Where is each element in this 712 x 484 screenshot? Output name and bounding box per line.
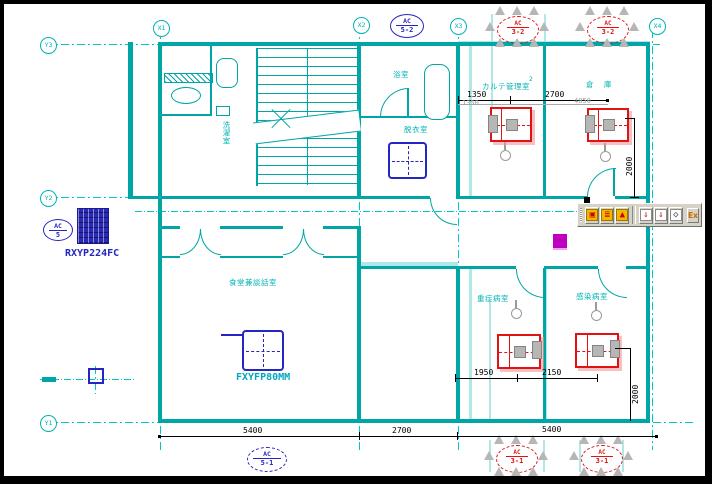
wall-segment [646, 42, 650, 423]
raise-tool-button[interactable]: ▲ [615, 207, 629, 224]
wall-segment [158, 42, 162, 423]
ac-tag-system: AC [597, 20, 619, 28]
dimension-line [455, 378, 598, 379]
wall-segment [360, 266, 516, 269]
dimension-text: 2700 [545, 90, 564, 99]
room-label-changing: 脱衣室 [404, 124, 428, 135]
indoor-unit-label: FXYFP80MM [236, 372, 290, 383]
ac-tag-system: AC [253, 450, 281, 459]
dimension-text: 2150 [542, 368, 561, 377]
wall-segment [158, 419, 650, 423]
ac-tag-red-selected[interactable]: AC 3-2 [492, 12, 542, 46]
dimension-tick [615, 348, 631, 349]
wall-segment [128, 196, 430, 199]
cassette-unit [242, 330, 284, 371]
wall-segment [456, 42, 460, 198]
door-arc [380, 88, 409, 117]
grip-triangle[interactable] [538, 451, 548, 460]
grip-triangle[interactable] [619, 6, 629, 15]
dimension-text: 5400 [542, 425, 561, 434]
door-arc [283, 229, 304, 255]
ac-tag-red-selected[interactable]: AC 3-1 [576, 441, 626, 475]
room-label-laundry: 洗濯室 [221, 121, 232, 161]
grip-triangle[interactable] [484, 451, 494, 460]
ac-tag-5-2: AC 5-2 [390, 14, 424, 38]
dimension-arrow [655, 435, 658, 438]
grip-triangle[interactable] [529, 6, 539, 15]
paste-button-1[interactable]: ⇓ [639, 207, 653, 224]
sensor-circle [500, 150, 511, 161]
door-arc [200, 229, 221, 255]
door-arc [430, 198, 457, 225]
room-label-records: カルテ管理室 [482, 81, 530, 92]
ac-tag-number: 3-1 [497, 457, 537, 466]
ac-tag-number: 3-2 [588, 28, 628, 37]
wall-segment [323, 256, 360, 258]
dimension-text: 1950 [474, 368, 493, 377]
wall-segment [158, 226, 180, 229]
dimension-line [634, 118, 635, 198]
grid-bubble-x2: X2 [353, 17, 370, 34]
outdoor-unit [77, 208, 109, 244]
sensor-circle [600, 151, 611, 162]
dimension-text: 2700 [392, 426, 411, 435]
grip-triangle[interactable] [495, 38, 505, 47]
dimension-text: 1350 [467, 90, 486, 99]
grip-triangle[interactable] [494, 467, 504, 476]
grid-bubble-y1: Y1 [40, 415, 57, 432]
wall-segment [220, 256, 283, 258]
eraser-button[interactable]: ◇ [669, 207, 683, 224]
dimension-tick [457, 432, 458, 440]
pipe-run [469, 268, 472, 420]
selection-point-marker[interactable] [553, 234, 567, 250]
room-label-ward-left: 重症病室 [477, 293, 509, 304]
wall-segment [323, 226, 360, 229]
grip-triangle[interactable] [512, 6, 522, 15]
dimension-tick [359, 432, 360, 440]
sensor-circle [591, 310, 602, 321]
diamond-icon: ◇ [670, 209, 682, 221]
wall-segment [543, 42, 546, 198]
grip-handle[interactable] [488, 115, 498, 133]
grip-triangle[interactable] [602, 6, 612, 15]
grid-line-y2 [45, 197, 137, 198]
indoor-unit-selected[interactable] [497, 334, 541, 369]
grip-triangle[interactable] [529, 38, 539, 47]
unit-divider [587, 335, 588, 366]
grip-triangle[interactable] [512, 38, 522, 47]
dimension-text: 2000 [631, 385, 640, 404]
exit-button[interactable]: Ex [687, 208, 699, 223]
grid-line-x4 [652, 30, 653, 450]
annex-symbol [88, 368, 104, 384]
dimension-tick [625, 118, 635, 119]
grip-triangle[interactable] [511, 467, 521, 476]
dimension-text: 2000 [625, 157, 634, 176]
indoor-unit-selected[interactable] [587, 108, 629, 142]
dimension-text: 5400 [243, 426, 262, 435]
grip-handle[interactable] [592, 345, 604, 357]
toolbar-separator [632, 206, 636, 224]
grip-triangle[interactable] [495, 6, 505, 15]
dimension-tick [510, 96, 511, 104]
cassette-unit [388, 142, 427, 179]
corridor-centerline [135, 211, 647, 212]
ac-tag-red-selected[interactable]: AC 3-1 [491, 441, 541, 475]
unit-divider [501, 109, 502, 140]
grip-triangle[interactable] [569, 451, 579, 460]
paste-icon: ⇓ [640, 209, 652, 221]
wall-segment [626, 266, 650, 269]
dimension-tick [630, 197, 639, 198]
grip-handle[interactable] [506, 119, 518, 131]
ac-tag-number: 3-2 [498, 28, 538, 37]
indoor-unit-selected[interactable] [575, 333, 619, 368]
unit-divider [598, 110, 599, 140]
door-arc [303, 229, 324, 255]
toilet-fixture [171, 87, 201, 104]
cassette-pipe-stub [221, 334, 242, 336]
room-label-records-note: 2 [529, 76, 533, 83]
grip-triangle[interactable] [629, 22, 639, 31]
ac-tag-red-selected[interactable]: AC 3-2 [582, 12, 632, 46]
grip-triangle[interactable] [575, 22, 585, 31]
room-label-storage: 倉 庫 [586, 79, 615, 90]
bathtub [424, 64, 450, 120]
paste-button-2[interactable]: ⇓ [654, 207, 668, 224]
grid-bubble-y2: Y2 [40, 190, 57, 207]
sensor-stem [504, 142, 506, 150]
dimension-tick [517, 374, 518, 382]
sink-fixture [216, 58, 238, 88]
grip-triangle[interactable] [585, 38, 595, 47]
list-icon: ≣ [601, 209, 613, 221]
ac-tag-system: AC [506, 449, 528, 457]
ac-tag-system: AC [49, 222, 67, 231]
floating-toolbar[interactable]: ▣ ≣ ▲ ⇓ ⇓ ◇ Ex [577, 203, 702, 227]
grip-triangle[interactable] [539, 22, 549, 31]
grip-handle[interactable] [532, 341, 542, 359]
grip-handle[interactable] [603, 119, 615, 131]
door-arc [587, 168, 616, 197]
door-arc [180, 229, 201, 255]
cassette-crosshair [263, 334, 264, 367]
paste-icon: ⇓ [655, 209, 667, 221]
grip-handle[interactable] [610, 340, 620, 358]
indoor-unit-selected[interactable] [490, 107, 532, 142]
wall-segment [128, 42, 133, 198]
sensor-stem [595, 302, 597, 310]
ac-tag-number: 3-1 [582, 457, 622, 466]
grid-bubble-x4: X4 [649, 18, 666, 35]
dimension-arrow [158, 435, 161, 438]
hatched-wall [164, 73, 213, 83]
grip-handle[interactable] [585, 115, 595, 133]
pipe-run [469, 46, 472, 196]
unit-divider [509, 336, 510, 367]
dimension-arrow [606, 99, 609, 102]
stamp-tool-button[interactable]: ▣ [585, 207, 599, 224]
ac-tag-system: AC [396, 17, 418, 26]
sensor-stem [515, 300, 517, 308]
ac-tag-5-1: AC 5-1 [247, 447, 287, 472]
wall-segment [158, 256, 180, 258]
sensor-circle [511, 308, 522, 319]
stamp-icon: ▣ [586, 209, 598, 221]
ac-tag-number: 5 [44, 231, 72, 240]
up-arrow-icon: ▲ [616, 209, 628, 221]
room-label-ward-right: 感染病室 [576, 291, 608, 302]
door-arc [516, 269, 545, 298]
cassette-crosshair [408, 146, 409, 175]
dimension-tick [597, 374, 598, 382]
door-leaf [613, 168, 615, 196]
door-leaf [407, 88, 409, 116]
grip-triangle[interactable] [485, 22, 495, 31]
toolbar-drag-handle[interactable] [580, 208, 582, 222]
dimension-tick [458, 96, 459, 104]
ac-tag-5: AC 5 [43, 219, 73, 241]
annex-mark [42, 377, 56, 382]
grip-triangle[interactable] [596, 467, 606, 476]
wall-segment [456, 196, 588, 199]
grip-triangle[interactable] [528, 467, 538, 476]
ac-tag-system: AC [591, 449, 613, 457]
wall-segment [220, 226, 283, 229]
pipe-run [489, 300, 491, 422]
grid-bubble-x3: X3 [450, 18, 467, 35]
grip-triangle[interactable] [623, 451, 633, 460]
dimension-tick [455, 374, 456, 382]
dimension-text-gray: 4050 [574, 97, 591, 105]
dimension-text-gray: 1350 [462, 99, 479, 107]
grip-triangle[interactable] [585, 6, 595, 15]
wall-segment [160, 114, 212, 116]
wall-segment [158, 42, 650, 46]
room-label-dining: 食堂兼談話室 [229, 277, 277, 288]
grid-bubble-x1: X1 [153, 20, 170, 37]
grip-triangle[interactable] [602, 38, 612, 47]
wall-segment [544, 266, 598, 269]
grip-triangle[interactable] [579, 467, 589, 476]
outdoor-unit-label: RXYP224FC [65, 248, 119, 259]
ac-tag-system: AC [507, 20, 529, 28]
sensor-stem [604, 143, 606, 151]
grip-handle[interactable] [514, 346, 526, 358]
wall-segment [456, 268, 460, 423]
grid-bubble-y3: Y3 [40, 37, 57, 54]
grip-triangle[interactable] [613, 467, 623, 476]
grip-triangle[interactable] [619, 38, 629, 47]
dimension-line [160, 436, 657, 437]
sink-fixture [216, 106, 230, 116]
list-tool-button[interactable]: ≣ [600, 207, 614, 224]
ac-tag-number: 5-2 [391, 26, 423, 35]
cad-canvas[interactable]: Y3 Y2 Y1 X1 X2 X3 X4 [0, 0, 712, 484]
room-label-bath: 浴室 [393, 69, 409, 80]
ac-tag-number: 5-1 [248, 459, 286, 468]
